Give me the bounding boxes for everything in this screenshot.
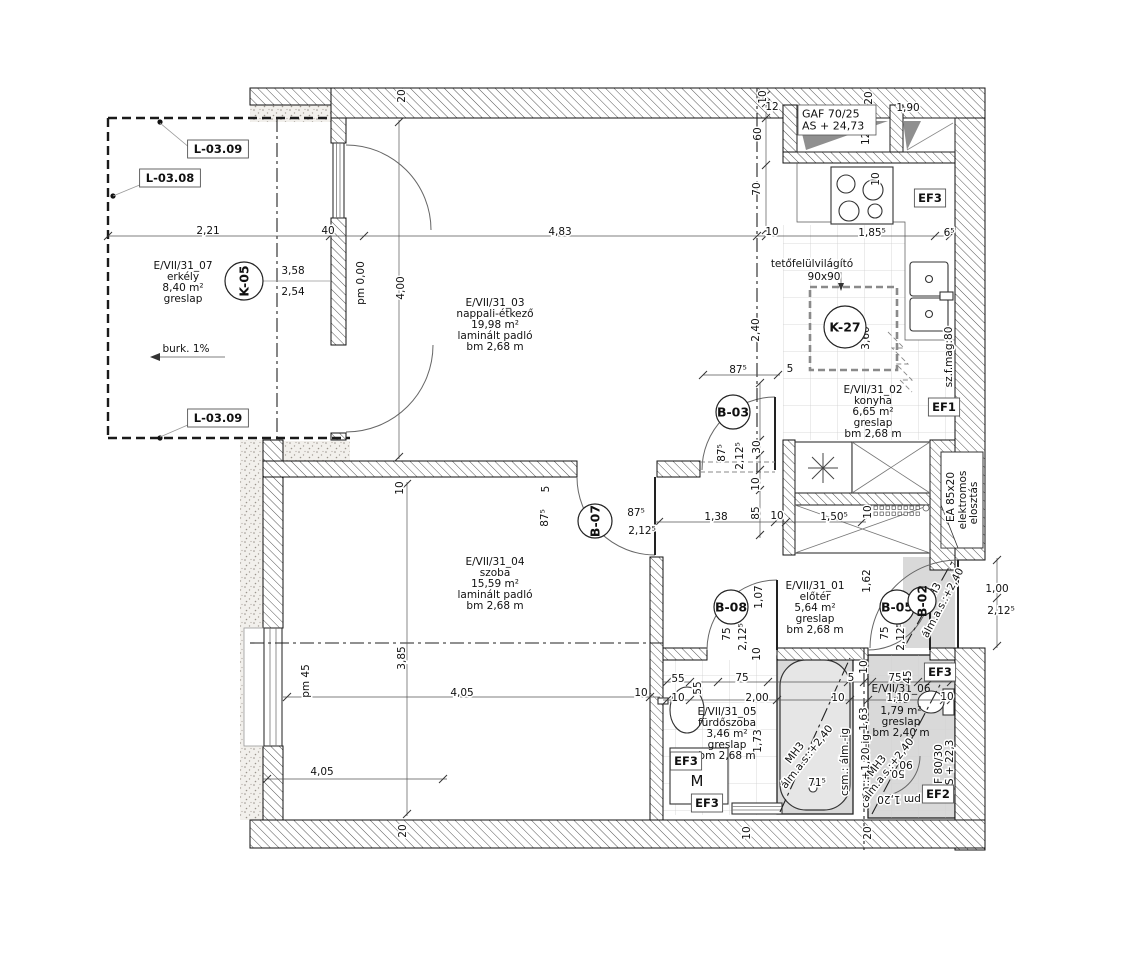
dimension: 10 bbox=[751, 647, 763, 660]
socket-icon bbox=[874, 512, 877, 515]
dimension: 75 bbox=[888, 672, 901, 684]
ref-box-l-03.08: L-03.08 bbox=[140, 169, 201, 187]
dimension: 70 bbox=[751, 182, 763, 195]
ref-box-label: L-03.09 bbox=[194, 142, 242, 156]
dimension: 1,10 bbox=[886, 692, 909, 704]
wall-shaft-left bbox=[783, 440, 795, 555]
leader-dot bbox=[157, 119, 162, 124]
ref-box-ef2: EF2 bbox=[922, 785, 953, 803]
tag-label: B-07 bbox=[588, 505, 603, 537]
socket-icon bbox=[916, 506, 919, 509]
annotation: M bbox=[691, 772, 704, 790]
radiator bbox=[732, 803, 782, 814]
dimension: 1,62 bbox=[861, 569, 873, 592]
floor-plan-canvas: E/VII/31_07erkély8,40 m²greslapE/VII/31_… bbox=[0, 0, 1141, 972]
dimension: 1,90 bbox=[896, 102, 919, 114]
dimension: 5 bbox=[540, 486, 552, 493]
ref-box-label: EF1 bbox=[932, 400, 956, 414]
wall-balcony-a bbox=[331, 118, 346, 143]
annotation: AS + 22,3 bbox=[944, 740, 956, 793]
annotation: pm 1,20 bbox=[877, 793, 921, 805]
dimension: 75 bbox=[735, 672, 748, 684]
room-label-erkely: greslap bbox=[164, 293, 203, 305]
dimension: 12 bbox=[765, 101, 778, 113]
wall-bottom bbox=[250, 820, 985, 848]
dimension: 30 bbox=[751, 440, 763, 453]
socket-icon bbox=[874, 506, 877, 509]
wall-room-right bbox=[650, 557, 663, 820]
dimension: 2,00 bbox=[745, 692, 768, 704]
annotation: burk. 1% bbox=[162, 343, 209, 355]
ref-box-ef3: EF3 bbox=[670, 752, 701, 770]
tag-k-27: K-27 bbox=[824, 306, 866, 348]
socket-icon bbox=[898, 506, 901, 509]
annotation: sz.f.mag:80 bbox=[943, 327, 955, 388]
asterisk-icon bbox=[808, 453, 838, 483]
room-label-nappali: bm 2,68 m bbox=[466, 341, 523, 353]
tag-label: K-27 bbox=[829, 320, 860, 335]
dimension: 85 bbox=[750, 506, 762, 519]
room-label-konyha: bm 2,68 m bbox=[844, 428, 901, 440]
dimension: 1,38 bbox=[704, 511, 727, 523]
annotation: pm 45 bbox=[300, 664, 312, 698]
dimension: 5 bbox=[787, 363, 794, 375]
dimension: 4,05 bbox=[310, 766, 333, 778]
socket-icon bbox=[886, 506, 889, 509]
socket-icon bbox=[898, 512, 901, 515]
balcony-door-swing-2 bbox=[346, 345, 433, 432]
dimension: 4,05 bbox=[450, 687, 473, 699]
sink-drain-icon bbox=[926, 311, 933, 318]
socket-icon bbox=[880, 506, 883, 509]
ref-box-ef3: EF3 bbox=[924, 663, 955, 681]
wall-left-lower bbox=[263, 746, 283, 820]
dimension: 10 bbox=[741, 826, 753, 839]
annotation: pm 0,00 bbox=[355, 261, 367, 305]
socket-icon bbox=[892, 512, 895, 515]
ref-box-label: EF3 bbox=[928, 665, 952, 679]
ref-box-label: L-03.08 bbox=[146, 171, 194, 185]
dimension: 4,83 bbox=[548, 226, 571, 238]
burner-icon bbox=[839, 201, 859, 221]
wall-balcony-b bbox=[331, 218, 346, 345]
dimension: 2,12⁵ bbox=[737, 623, 749, 651]
dimension: 5 bbox=[848, 672, 855, 684]
dimension: 87⁵ bbox=[729, 364, 747, 376]
dimension: 20 bbox=[396, 89, 408, 102]
tag-b-08: B-08 bbox=[714, 590, 748, 624]
room-label-eloter: bm 2,68 m bbox=[786, 624, 843, 636]
dimension: 20 bbox=[862, 826, 874, 839]
annotation: tetőfelülvilágító bbox=[771, 258, 853, 270]
wall-bath-top-b bbox=[777, 648, 868, 660]
dimension: 87⁵ bbox=[627, 507, 645, 519]
info-box-line: AS + 24,73 bbox=[802, 120, 864, 133]
sink-tap-icon bbox=[940, 292, 953, 300]
socket-icon bbox=[910, 506, 913, 509]
socket-icon bbox=[886, 512, 889, 515]
dimension: 10 bbox=[765, 226, 778, 238]
burner-icon bbox=[868, 204, 882, 218]
ref-box-label: EF3 bbox=[674, 754, 698, 768]
socket-icon bbox=[916, 512, 919, 515]
room-label-furdoszoba: bm 2,68 m bbox=[698, 750, 755, 762]
burner-icon bbox=[837, 175, 855, 193]
dimension: 20 bbox=[397, 824, 409, 837]
balcony-door-swing-1 bbox=[346, 145, 431, 230]
wall-gaf-band bbox=[783, 152, 955, 163]
annotation: 90x90 bbox=[808, 271, 841, 283]
dimension: 2,12⁵ bbox=[628, 525, 656, 537]
ref-box-l-03.09: L-03.09 bbox=[188, 140, 249, 158]
dimension: 4,00 bbox=[395, 276, 407, 299]
dimension: 20 bbox=[863, 91, 875, 104]
dimension: 10 bbox=[940, 691, 953, 703]
ref-box-label: EF3 bbox=[695, 796, 719, 810]
socket-icon bbox=[910, 512, 913, 515]
ref-box-label: EF2 bbox=[926, 787, 950, 801]
floor-plan-svg: E/VII/31_07erkély8,40 m²greslapE/VII/31_… bbox=[0, 0, 1141, 972]
wall-living-room-b bbox=[657, 461, 700, 477]
tag-b-07: B-07 bbox=[578, 504, 612, 538]
wall-top bbox=[331, 88, 985, 118]
wall-bath-top-a bbox=[663, 648, 707, 660]
ref-box-label: EF3 bbox=[918, 191, 942, 205]
ref-box-ef1: EF1 bbox=[928, 398, 959, 416]
dimension: 6⁵ bbox=[944, 227, 955, 239]
dimension: 1,07 bbox=[753, 585, 765, 608]
dimension: 2,21 bbox=[196, 225, 219, 237]
room-window-sill bbox=[244, 628, 264, 746]
tag-label: B-02 bbox=[915, 585, 930, 617]
dimension: 40 bbox=[321, 225, 334, 237]
socket-icon bbox=[904, 512, 907, 515]
dimension: 10 bbox=[862, 505, 874, 518]
wall-shaft-band bbox=[795, 493, 930, 505]
annotation: EA 85x20 bbox=[945, 472, 957, 522]
dimension: 10 bbox=[831, 692, 844, 704]
dimension: 1,50⁵ bbox=[820, 511, 848, 523]
room-label-szoba: bm 2,68 m bbox=[466, 600, 523, 612]
dimension: 71⁵ bbox=[808, 777, 826, 789]
dimension: 2,54 bbox=[281, 286, 305, 298]
dimension: 2,12⁵ bbox=[895, 623, 907, 651]
ref-box-ef3: EF3 bbox=[914, 189, 945, 207]
socket-icon bbox=[880, 512, 883, 515]
dimension: 10 bbox=[858, 660, 870, 673]
dimension: 1,73 bbox=[752, 729, 764, 752]
dimension: 2,12⁵ bbox=[734, 442, 746, 470]
dimension: 1,00 bbox=[985, 583, 1008, 595]
dimension: 45 bbox=[902, 670, 914, 683]
dimension: 10 bbox=[634, 687, 647, 699]
gaf-info-box: GAF 70/25AS + 24,73 bbox=[798, 105, 876, 135]
dimension: 1,63 bbox=[858, 707, 870, 730]
dimension: 75 bbox=[879, 626, 891, 639]
dimension: 10 bbox=[750, 477, 762, 490]
render-strip-corner bbox=[243, 441, 350, 461]
tag-label: B-08 bbox=[715, 600, 747, 615]
room-window bbox=[264, 628, 282, 746]
socket-icon bbox=[904, 506, 907, 509]
dimension: 60 bbox=[752, 127, 764, 140]
tag-b-03: B-03 bbox=[716, 395, 750, 429]
balcony-window bbox=[333, 143, 344, 218]
dimension: 3,58 bbox=[281, 265, 304, 277]
room-label-wc: bm 2,40 m bbox=[872, 727, 929, 739]
dimension: 10 bbox=[770, 510, 783, 522]
dimension: 75 bbox=[721, 627, 733, 640]
ref-box-label: L-03.09 bbox=[194, 411, 242, 425]
dimension: 2,40 bbox=[750, 318, 762, 341]
socket-icon bbox=[923, 505, 929, 511]
dimension: 2,12⁵ bbox=[987, 605, 1015, 617]
ref-box-ef3: EF3 bbox=[691, 794, 722, 812]
dimension: 55 bbox=[671, 673, 684, 685]
tag-label: B-03 bbox=[717, 405, 749, 420]
annotation: csm.: álm.-ig bbox=[839, 728, 851, 796]
tag-label: K-05 bbox=[237, 265, 252, 296]
dimension: 1,85⁵ bbox=[858, 227, 886, 239]
slope-arrow-head bbox=[150, 353, 160, 361]
dimension: 10 bbox=[671, 692, 684, 704]
annotation: elosztás bbox=[968, 482, 980, 525]
dimension: 10 bbox=[394, 481, 406, 494]
wall-living-room-a bbox=[263, 461, 577, 477]
ref-box-l-03.09: L-03.09 bbox=[188, 409, 249, 427]
dimension: 55 bbox=[692, 681, 704, 694]
dimension: 87⁵ bbox=[539, 509, 551, 527]
dimension: 10 bbox=[870, 172, 882, 185]
sink-drain-icon bbox=[926, 276, 933, 283]
dimension: 3,85 bbox=[396, 646, 408, 669]
socket-icon bbox=[892, 506, 895, 509]
dimension: 87⁵ bbox=[716, 444, 728, 462]
tag-k-05: K-05 bbox=[225, 262, 263, 300]
wall-top-left bbox=[250, 88, 331, 105]
wall-wc-top bbox=[930, 648, 955, 660]
